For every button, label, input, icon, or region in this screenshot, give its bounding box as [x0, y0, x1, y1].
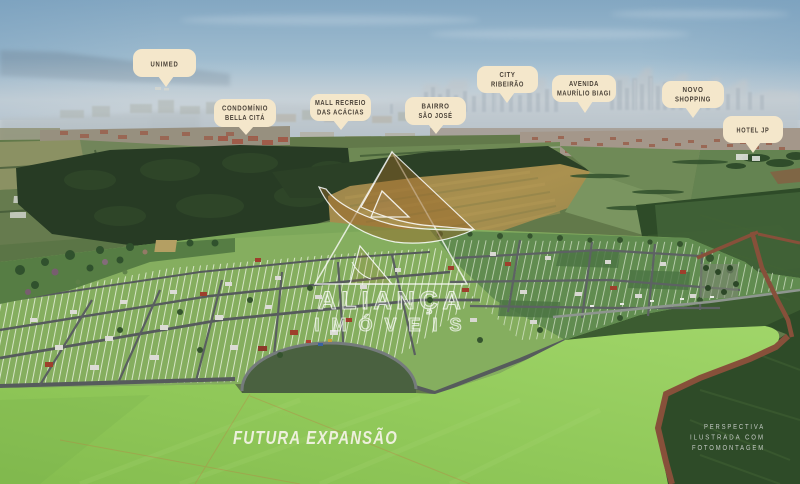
svg-text:ILUSTRADA COM: ILUSTRADA COM: [690, 433, 765, 442]
svg-text:SÃO JOSÉ: SÃO JOSÉ: [419, 111, 453, 120]
svg-text:PERSPECTIVA: PERSPECTIVA: [704, 422, 765, 431]
svg-text:NOVO: NOVO: [683, 87, 704, 94]
svg-text:MALL RECREIO: MALL RECREIO: [315, 100, 366, 107]
svg-text:ALIANÇA: ALIANÇA: [318, 287, 466, 315]
svg-text:DAS ACÁCIAS: DAS ACÁCIAS: [317, 108, 364, 117]
svg-text:MAURÍLIO BIAGI: MAURÍLIO BIAGI: [557, 89, 611, 98]
svg-text:FOTOMONTAGEM: FOTOMONTAGEM: [692, 443, 765, 452]
svg-text:RIBEIRÃO: RIBEIRÃO: [491, 80, 524, 89]
svg-text:AVENIDA: AVENIDA: [569, 81, 599, 88]
svg-text:CONDOMÍNIO: CONDOMÍNIO: [222, 104, 268, 113]
svg-text:HOTEL JP: HOTEL JP: [737, 126, 770, 135]
svg-text:BELLA CITÁ: BELLA CITÁ: [225, 113, 265, 122]
svg-text:CITY: CITY: [500, 72, 516, 79]
svg-text:UNIMED: UNIMED: [151, 60, 179, 69]
svg-text:IMÓVEIS: IMÓVEIS: [314, 314, 473, 335]
svg-text:BAIRRO: BAIRRO: [422, 104, 450, 111]
svg-text:FUTURA EXPANSÃO: FUTURA EXPANSÃO: [233, 427, 398, 448]
svg-text:SHOPPING: SHOPPING: [675, 97, 711, 104]
